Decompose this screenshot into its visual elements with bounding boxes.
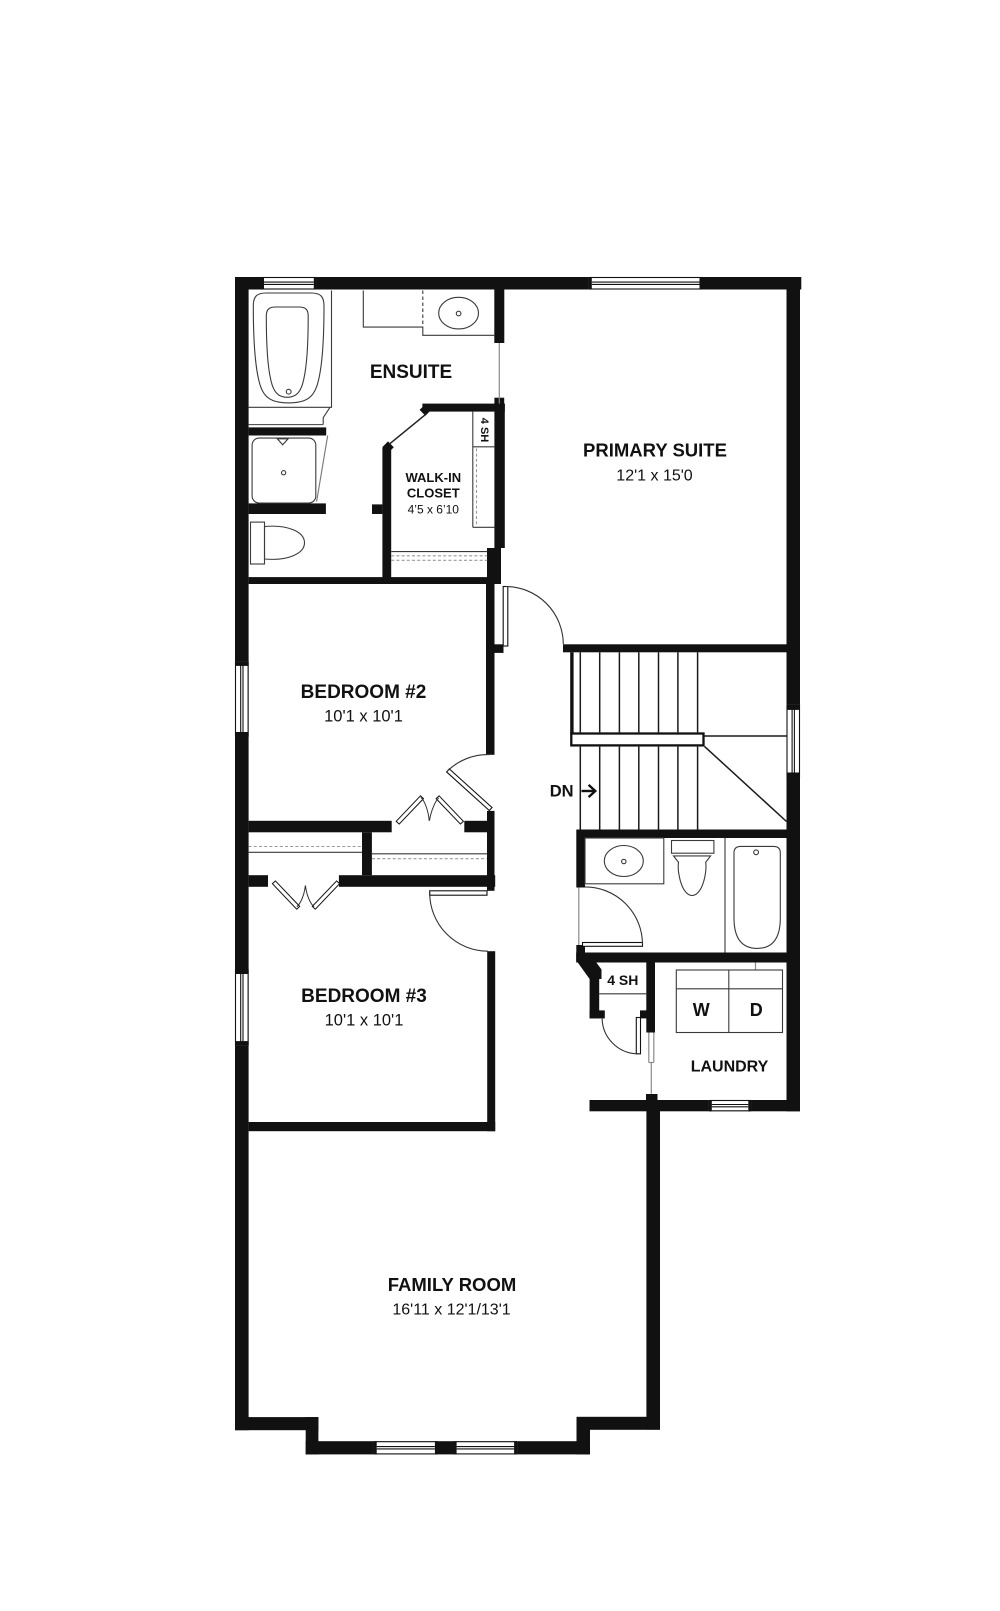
svg-text:ENSUITE: ENSUITE [370,362,452,383]
svg-text:LAUNDRY: LAUNDRY [691,1058,769,1075]
svg-text:16'11 x 12'1/13'1: 16'11 x 12'1/13'1 [392,1302,510,1319]
svg-text:BEDROOM #2: BEDROOM #2 [301,682,427,703]
svg-text:WALK-IN: WALK-IN [405,470,461,485]
svg-text:4’5 x 6’10: 4’5 x 6’10 [408,503,460,517]
svg-text:PRIMARY SUITE: PRIMARY SUITE [583,440,727,461]
svg-text:BEDROOM #3: BEDROOM #3 [301,986,427,1007]
svg-text:10'1 x 10'1: 10'1 x 10'1 [325,1012,404,1030]
svg-text:10'1 x 10'1: 10'1 x 10'1 [324,708,403,726]
svg-text:4 SH: 4 SH [607,972,638,988]
svg-text:4 SH: 4 SH [478,418,490,443]
svg-text:W: W [693,1000,710,1020]
svg-text:FAMILY ROOM: FAMILY ROOM [388,1274,517,1295]
svg-text:DN: DN [550,783,574,801]
svg-text:D: D [750,1000,763,1020]
svg-text:CLOSET: CLOSET [407,486,460,501]
svg-text:12'1 x 15'0: 12'1 x 15'0 [616,468,692,485]
